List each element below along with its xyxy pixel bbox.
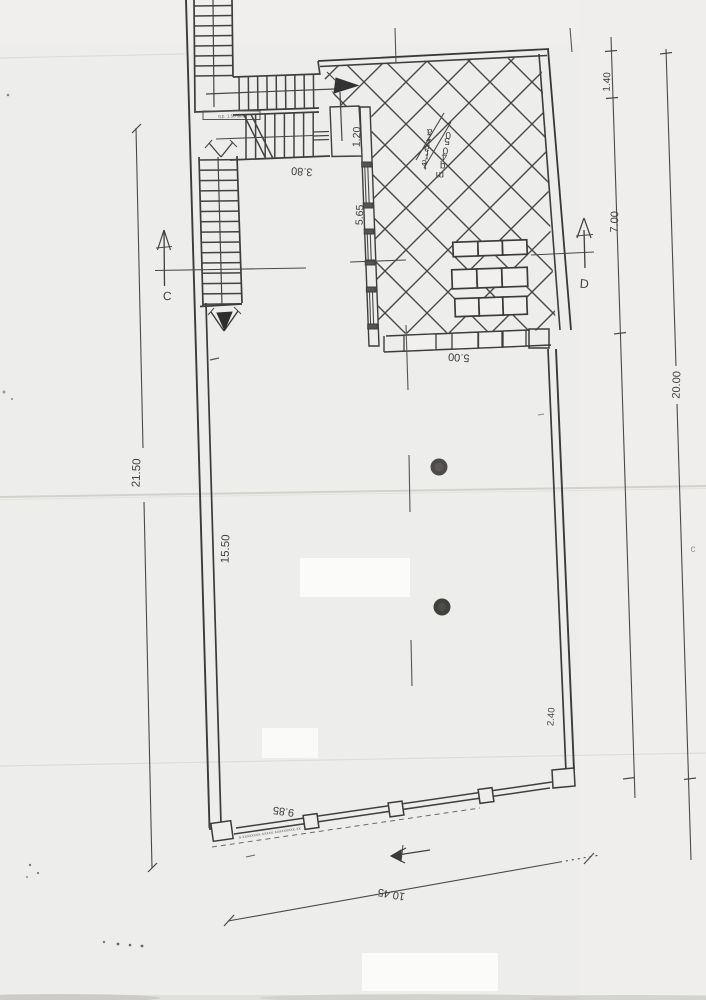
svg-text:15.50: 15.50 — [220, 534, 233, 563]
svg-text:1.20: 1.20 — [351, 126, 364, 147]
svg-text:20.00: 20.00 — [671, 371, 684, 399]
svg-text:c: c — [691, 544, 696, 555]
svg-text:2.40: 2.40 — [545, 707, 557, 726]
svg-text:1.40: 1.40 — [602, 72, 614, 92]
svg-text:7.00: 7.00 — [609, 211, 622, 233]
svg-text:5.00: 5.00 — [448, 350, 470, 363]
svg-text:C: C — [162, 289, 172, 304]
svg-text:3.80: 3.80 — [291, 164, 313, 177]
svg-text:5.65: 5.65 — [354, 204, 367, 225]
svg-text:D: D — [579, 277, 589, 292]
svg-text:21.50: 21.50 — [131, 458, 144, 487]
